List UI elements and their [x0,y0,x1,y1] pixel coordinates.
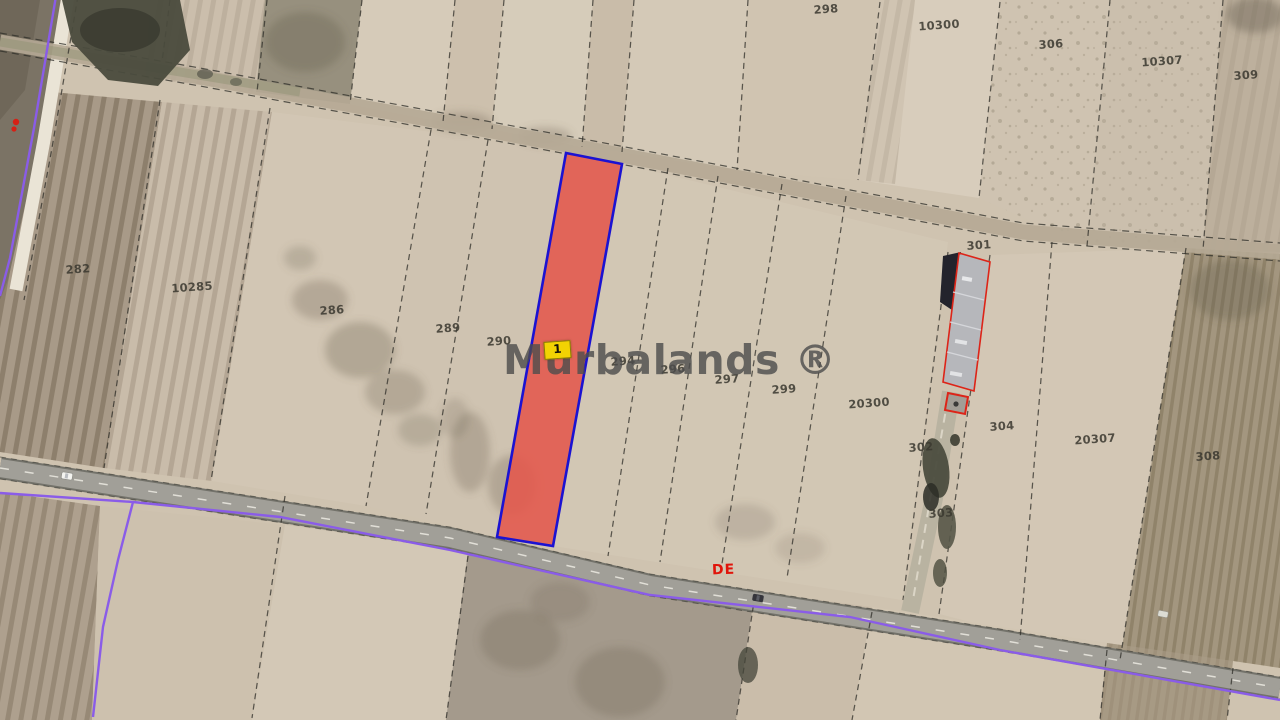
selected-parcel-marker[interactable]: 1 [543,340,571,360]
car-white [61,472,73,481]
road-label: DE [712,562,736,579]
map-viewport[interactable]: 2821028528628929029429629729929810300306… [0,0,1280,720]
